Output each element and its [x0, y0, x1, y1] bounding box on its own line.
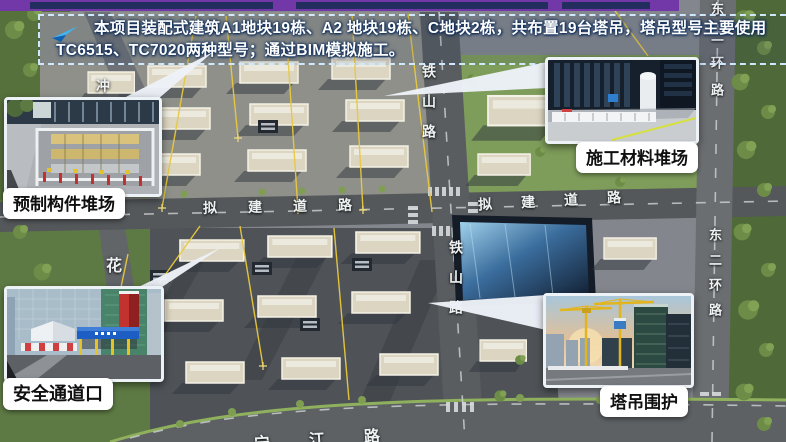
- callout-label-safety-passage: 安全通道口: [3, 378, 113, 410]
- callout-label-prefab-yard: 预制构件堆场: [3, 188, 125, 219]
- bullet-arrow-icon: [50, 24, 78, 43]
- slide-header-remnant: [0, 0, 679, 11]
- road-label-tieshan-north: 铁山路: [419, 64, 439, 154]
- road-label-chong: 冲: [96, 76, 110, 96]
- prefab-component-yard-photo: [4, 97, 162, 197]
- road-label-hua: 花: [106, 252, 122, 276]
- callout-label-crane-enclosure: 塔吊围护: [600, 386, 688, 417]
- construction-material-yard-photo: [545, 57, 699, 144]
- header-segment: [562, 2, 650, 9]
- bim-site-plan-slide: 铁山路 铁山路 拟建道路 拟建道路 东二环路 东二环路 花 冲 宁江路 本项目装…: [0, 0, 786, 442]
- header-segment: [296, 2, 548, 9]
- tower-crane-enclosure-photo: [543, 293, 694, 388]
- road-label-proposed-west: 拟建道路: [203, 194, 383, 218]
- callout-label-material-yard: 施工材料堆场: [576, 142, 698, 173]
- road-label-tieshan-south: 铁山路: [446, 240, 466, 330]
- header-segment: [30, 2, 273, 9]
- safety-passage-photo: [4, 286, 164, 382]
- road-label-east-ring-south: 东二环路: [705, 228, 724, 328]
